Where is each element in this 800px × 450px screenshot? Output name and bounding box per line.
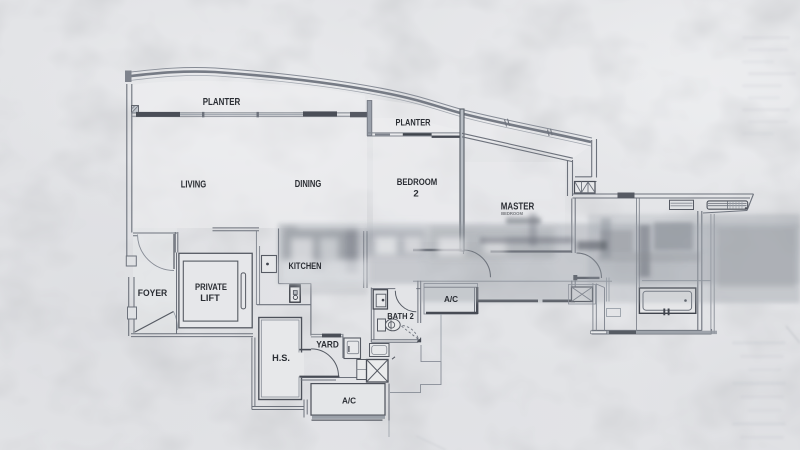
svg-text:DINING: DINING (295, 179, 322, 190)
svg-text:BEDROOM: BEDROOM (397, 177, 438, 188)
svg-text:PLANTER: PLANTER (203, 97, 241, 108)
svg-text:FOYER: FOYER (138, 288, 168, 299)
svg-text:PLANTER: PLANTER (396, 116, 431, 127)
svg-text:YARD: YARD (316, 339, 339, 349)
svg-text:2: 2 (413, 188, 418, 199)
svg-text:LIFT: LIFT (200, 293, 220, 303)
svg-text:LIVING: LIVING (181, 179, 207, 190)
svg-text:KITCHEN: KITCHEN (289, 260, 322, 271)
svg-text:BATH 2: BATH 2 (387, 311, 414, 321)
svg-text:A/C: A/C (342, 397, 356, 406)
svg-text:A/C: A/C (444, 295, 458, 304)
svg-text:BEDROOM: BEDROOM (501, 211, 523, 216)
svg-text:H.S.: H.S. (272, 353, 290, 363)
svg-text:PRIVATE: PRIVATE (195, 282, 227, 292)
